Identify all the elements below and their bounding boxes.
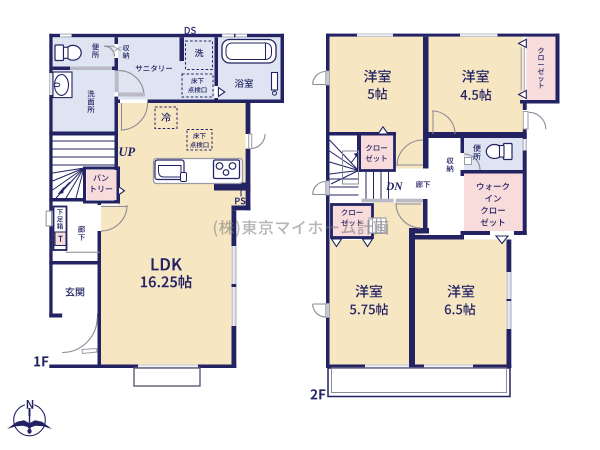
- svg-text:DN: DN: [385, 181, 403, 193]
- svg-text:UP: UP: [119, 145, 136, 159]
